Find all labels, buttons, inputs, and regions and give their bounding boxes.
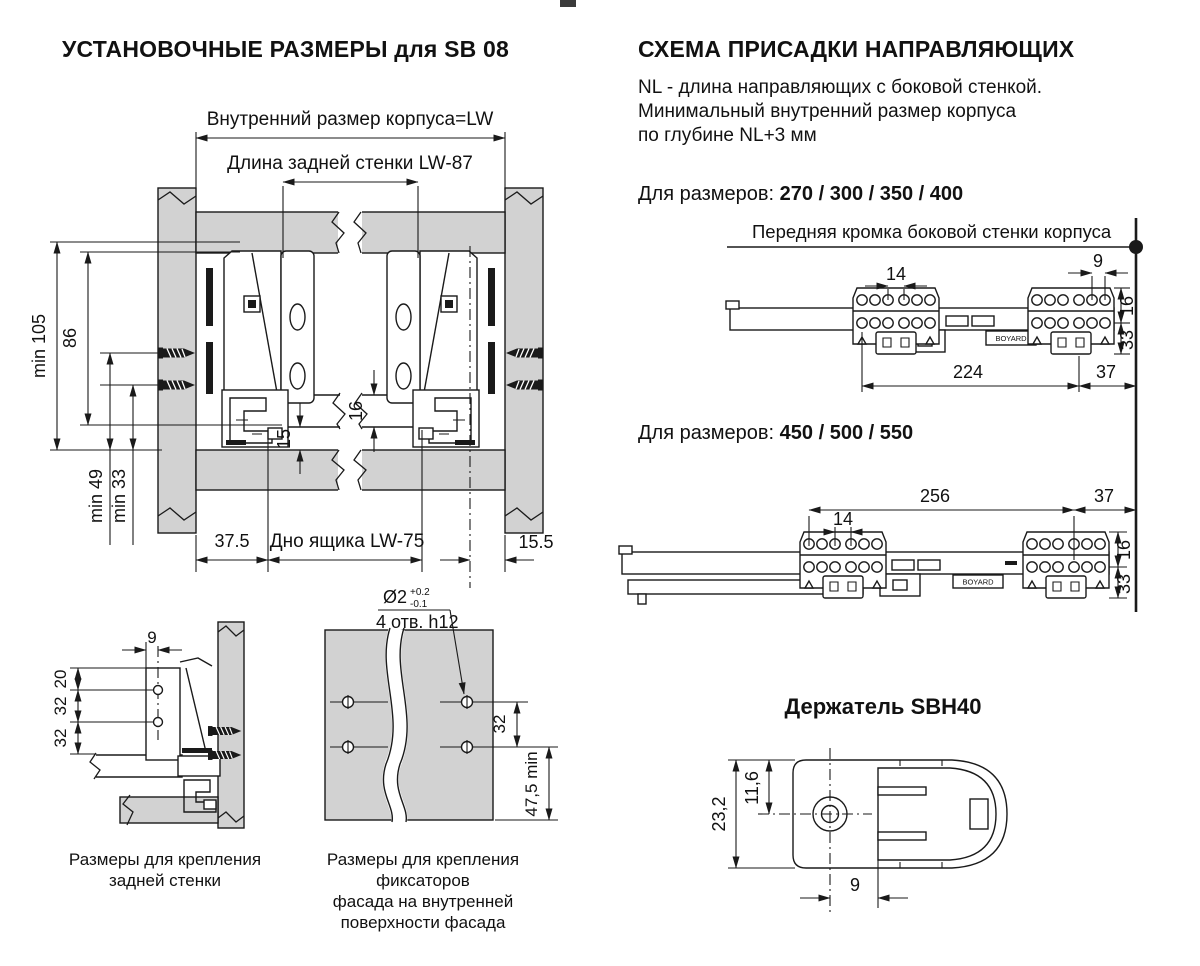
dim-16-label: 16 <box>346 401 366 421</box>
holder-title: Держатель SBH40 <box>763 694 1003 720</box>
sizes-small-label: Для размеров: <box>638 183 774 205</box>
rail1-dim-9-label: 9 <box>1093 251 1103 271</box>
right-cabinet-wall <box>505 188 543 533</box>
rear-caption-line2: задней стенки <box>56 870 274 891</box>
nl-description-line3: по глубине NL+3 мм <box>638 124 1042 148</box>
holder-dim-23-2-label: 23,2 <box>709 796 729 831</box>
dim-15-label: 15 <box>274 429 294 449</box>
rear-dim-32b-label: 32 <box>51 729 70 748</box>
nl-description-line2: Минимальный внутренний размер корпуса <box>638 100 1042 124</box>
callout-holes: 4 отв. h12 <box>376 612 458 632</box>
dim-min105-label: min 105 <box>29 314 49 378</box>
rear-caption: Размеры для крепления задней стенки <box>56 849 274 891</box>
rail-diagram-small-sizes: BOYARD 14 9 16 33 224 37 <box>726 251 1137 392</box>
rail1-dim-33-label: 33 <box>1117 330 1137 350</box>
holder-dim-11-6-label: 11,6 <box>742 771 762 805</box>
sizes-small-line: Для размеров: 270 / 300 / 350 / 400 <box>638 183 963 206</box>
rail2-dim-37-label: 37 <box>1094 486 1114 506</box>
facade-caption-line2: фасада на внутренней <box>292 891 554 912</box>
rail1-dim-224-label: 224 <box>953 362 983 382</box>
mounting-block-right <box>1028 288 1114 354</box>
right-title: СХЕМА ПРИСАДКИ НАПРАВЛЯЮЩИХ <box>638 36 1074 63</box>
front-edge-label: Передняя кромка боковой стенки корпуса <box>752 221 1111 243</box>
nl-description-line1: NL - длина направляющих с боковой стенко… <box>638 76 1042 100</box>
rear-caption-line1: Размеры для крепления <box>56 849 274 870</box>
sizes-small-values: 270 / 300 / 350 / 400 <box>780 183 964 205</box>
facade-dim-32-label: 32 <box>490 715 509 734</box>
dim-37-5-label: 37.5 <box>214 531 249 551</box>
brand-logo-small: BOYARD <box>995 334 1027 343</box>
technical-drawing-page: Внутренний размер корпуса=LW Длина задне… <box>0 0 1200 966</box>
rear-dim-9-label: 9 <box>147 628 156 647</box>
dim-bottom-label: Дно ящика LW-75 <box>270 531 425 552</box>
rail1-dim-14-label: 14 <box>886 264 906 284</box>
dim-15-5-label: 15.5 <box>518 532 553 552</box>
left-cabinet-wall <box>158 188 196 533</box>
scan-artifact <box>560 0 576 7</box>
main-cross-section-diagram: Внутренний размер корпуса=LW Длина задне… <box>29 109 554 588</box>
bottom-strip <box>196 446 505 494</box>
dim-min33-label: min 33 <box>109 469 129 523</box>
mounting-block-left-2 <box>800 532 886 598</box>
rail2-dim-256-label: 256 <box>920 486 950 506</box>
brand-logo-large: BOYARD <box>962 578 994 587</box>
callout-tolerance-minus: -0.1 <box>410 599 428 610</box>
rail2-dim-14-label: 14 <box>833 509 853 529</box>
front-edge-dot <box>1129 240 1143 254</box>
left-title: УСТАНОВОЧНЫЕ РАЗМЕРЫ для SB 08 <box>62 36 509 63</box>
callout-tolerance-plus: +0.2 <box>410 587 430 598</box>
rail2-dim-16-label: 16 <box>1114 540 1134 560</box>
facade-fixator-diagram: Ø2 +0.2 -0.1 4 отв. h12 32 47,5 min <box>325 587 558 822</box>
rear-dim-32a-label: 32 <box>51 697 70 716</box>
rail1-dim-16-label: 16 <box>1117 296 1137 316</box>
facade-dim-47-5-label: 47,5 min <box>522 751 541 816</box>
rail2-dim-33-label: 33 <box>1114 574 1134 594</box>
mounting-block-right-2 <box>1023 532 1109 598</box>
nl-description: NL - длина направляющих с боковой стенко… <box>638 76 1042 148</box>
sizes-large-line: Для размеров: 450 / 500 / 550 <box>638 422 913 445</box>
facade-caption-line3: поверхности фасада <box>292 912 554 933</box>
sizes-large-values: 450 / 500 / 550 <box>780 422 913 444</box>
rail1-dim-37-label: 37 <box>1096 362 1116 382</box>
mounting-block-left <box>853 288 939 354</box>
holder-sbh40-diagram: 23,2 11,6 9 <box>709 748 1007 912</box>
back-wall-strip <box>196 208 505 257</box>
rear-dim-20-label: 20 <box>51 670 70 689</box>
rail-diagram-large-sizes: BOYARD 256 37 14 16 33 <box>619 486 1136 604</box>
sizes-large-label: Для размеров: <box>638 422 774 444</box>
facade-caption: Размеры для крепления фиксаторов фасада … <box>292 849 554 933</box>
dim-back-wall-label: Длина задней стенки LW-87 <box>227 153 473 174</box>
callout-diameter: Ø2 <box>383 587 407 607</box>
dim-inner-width-label: Внутренний размер корпуса=LW <box>207 109 494 130</box>
facade-caption-line1: Размеры для крепления фиксаторов <box>292 849 554 891</box>
dim-min49-label: min 49 <box>86 469 106 523</box>
dim-86-label: 86 <box>60 328 80 348</box>
holder-dim-9-label: 9 <box>850 875 860 895</box>
rear-wall-fixing-diagram: 9 20 32 32 <box>51 622 244 828</box>
